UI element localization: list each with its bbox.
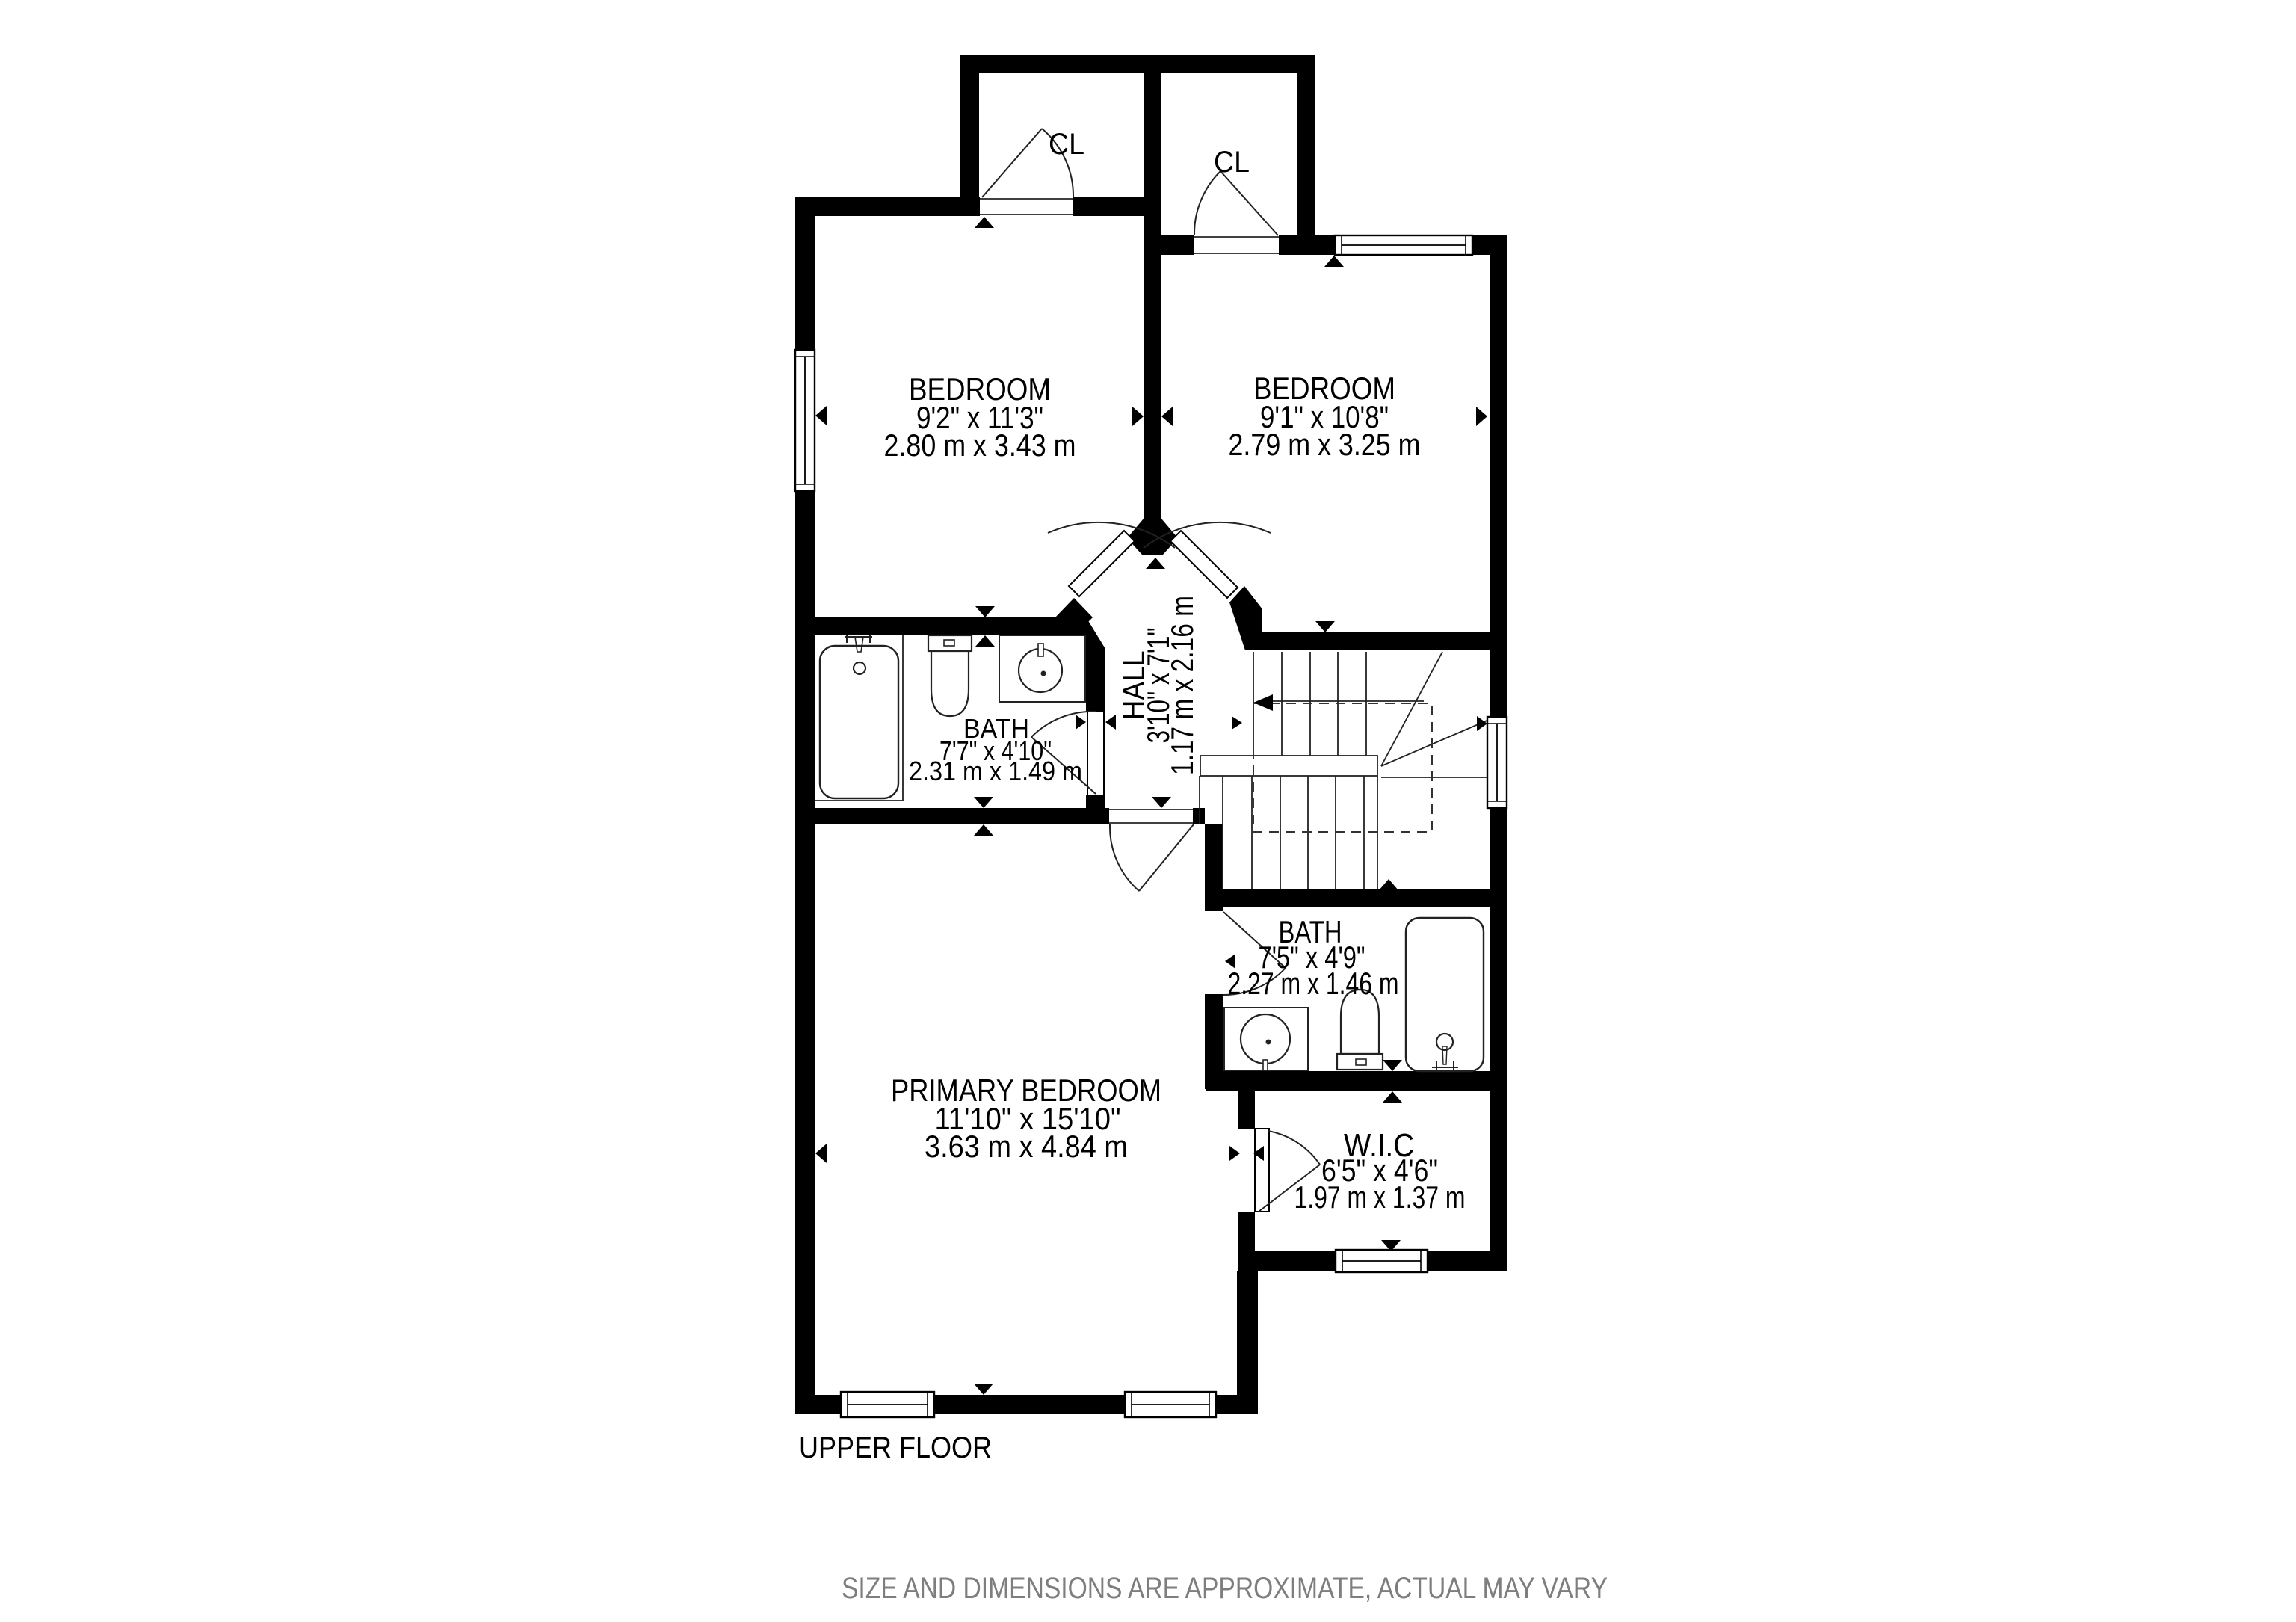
svg-text:1.17 m x 2.16 m: 1.17 m x 2.16 m (1164, 596, 1200, 775)
svg-text:2.27 m x 1.46 m: 2.27 m x 1.46 m (1228, 966, 1399, 1001)
svg-text:2.79 m x 3.25 m: 2.79 m x 3.25 m (1229, 427, 1421, 462)
svg-text:2.80 m x 3.43 m: 2.80 m x 3.43 m (884, 428, 1076, 463)
svg-text:1.97 m x 1.37 m: 1.97 m x 1.37 m (1294, 1180, 1466, 1215)
svg-text:SIZE AND DIMENSIONS ARE APPROX: SIZE AND DIMENSIONS ARE APPROXIMATE, ACT… (842, 1572, 1608, 1605)
svg-text:2.31 m x 1.49 m: 2.31 m x 1.49 m (909, 756, 1082, 786)
svg-text:CL: CL (1214, 146, 1250, 179)
svg-text:CL: CL (1049, 128, 1084, 161)
svg-text:UPPER FLOOR: UPPER FLOOR (799, 1431, 992, 1464)
svg-text:3.63 m x 4.84 m: 3.63 m x 4.84 m (925, 1129, 1128, 1164)
